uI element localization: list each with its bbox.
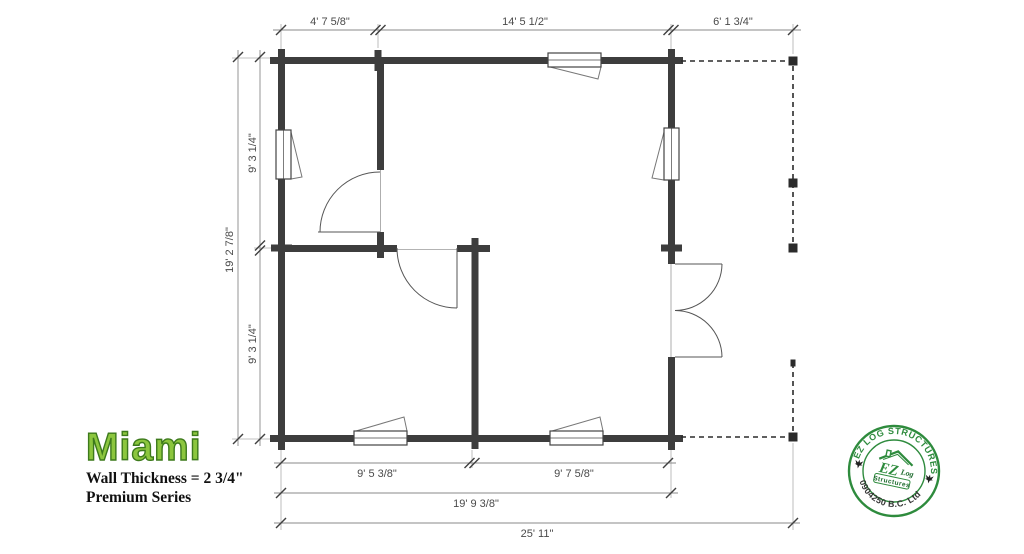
dim-top-porch: 6' 1 3/4" — [713, 16, 753, 28]
dimension-ticks — [233, 25, 798, 528]
wall-top — [270, 57, 683, 64]
dim-bottom-right-room: 9' 7 5/8" — [554, 468, 594, 480]
window-right — [652, 128, 679, 180]
partition-horizontal-left — [285, 245, 397, 252]
series-note: Premium Series — [86, 490, 244, 506]
partition-vertical-2 — [472, 238, 479, 435]
dim-left-lower: 9' 3 1/4" — [247, 324, 259, 364]
window-left — [276, 130, 302, 179]
porch-post-5 — [789, 433, 798, 442]
dimension-lines — [238, 30, 801, 523]
dim-left-upper: 9' 3 1/4" — [247, 133, 259, 173]
interior-walls — [285, 64, 490, 435]
porch — [681, 57, 798, 442]
door-interior-2 — [397, 248, 457, 308]
porch-post-4 — [791, 360, 796, 367]
porch-post-1 — [789, 57, 798, 66]
tie-right — [661, 245, 682, 252]
dim-bottom-overall: 25' 11" — [521, 528, 554, 540]
window-bottom-right — [550, 417, 603, 445]
door-interior-1 — [318, 170, 381, 232]
window-bottom-left — [354, 417, 407, 445]
dim-left-overall: 19' 2 7/8" — [224, 227, 236, 273]
dim-top-middle: 14' 5 1/2" — [502, 16, 548, 28]
porch-post-2 — [789, 179, 798, 188]
dim-bottom-left-room: 9' 5 3/8" — [357, 468, 397, 480]
window-top — [548, 53, 601, 79]
door-french-right — [671, 264, 722, 357]
title-block: Miami Wall Thickness = 2 3/4" Premium Se… — [86, 428, 244, 505]
extension-lines — [232, 24, 793, 530]
porch-post-3 — [789, 244, 798, 253]
dim-bottom-building: 19' 9 3/8" — [453, 498, 499, 510]
wall-right-lower — [668, 357, 675, 450]
company-stamp: EZ LOG STRUCTURES 0904250 B.C. Ltd EZ Lo… — [845, 420, 949, 528]
floorplan-page: 4' 7 5/8" 14' 5 1/2" 6' 1 3/4" 19' 2 7/8… — [0, 0, 1024, 554]
wall-thickness-note: Wall Thickness = 2 3/4" — [86, 471, 244, 487]
model-name: Miami — [86, 428, 244, 467]
doors — [318, 170, 722, 357]
partition-vertical-1 — [377, 64, 384, 170]
dim-top-left: 4' 7 5/8" — [310, 16, 350, 28]
